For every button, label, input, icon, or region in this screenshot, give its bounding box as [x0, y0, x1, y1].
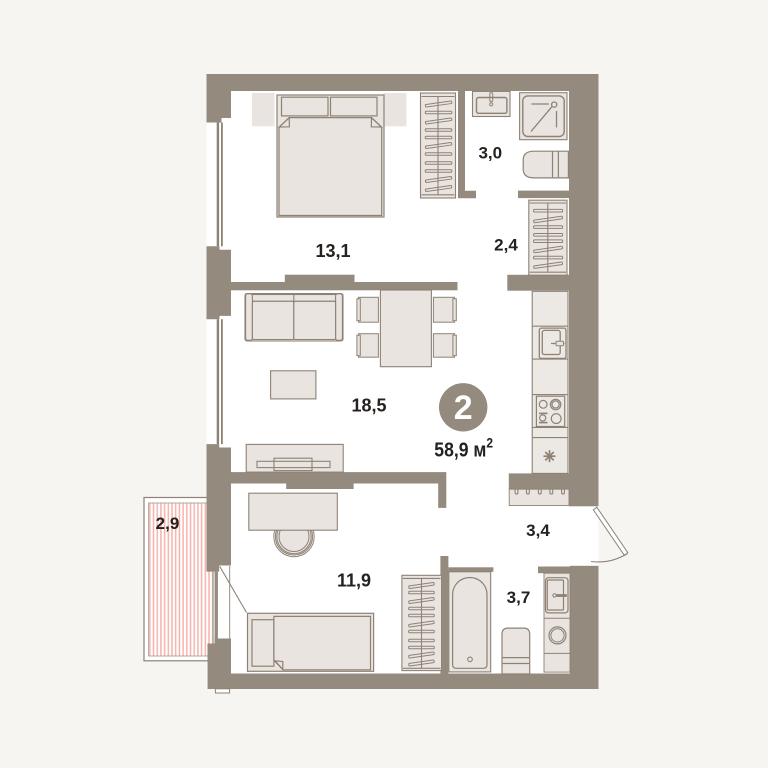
svg-text:13,1: 13,1 [315, 241, 350, 261]
svg-text:18,5: 18,5 [351, 395, 386, 415]
svg-text:3,7: 3,7 [507, 588, 531, 607]
svg-text:2,4: 2,4 [494, 236, 518, 255]
svg-text:11,9: 11,9 [337, 571, 371, 591]
svg-text:2,9: 2,9 [156, 514, 180, 533]
svg-text:58,9 м2: 58,9 м2 [434, 435, 493, 462]
svg-text:2: 2 [454, 389, 473, 427]
svg-text:3,4: 3,4 [526, 521, 550, 540]
svg-text:3,0: 3,0 [478, 144, 502, 163]
